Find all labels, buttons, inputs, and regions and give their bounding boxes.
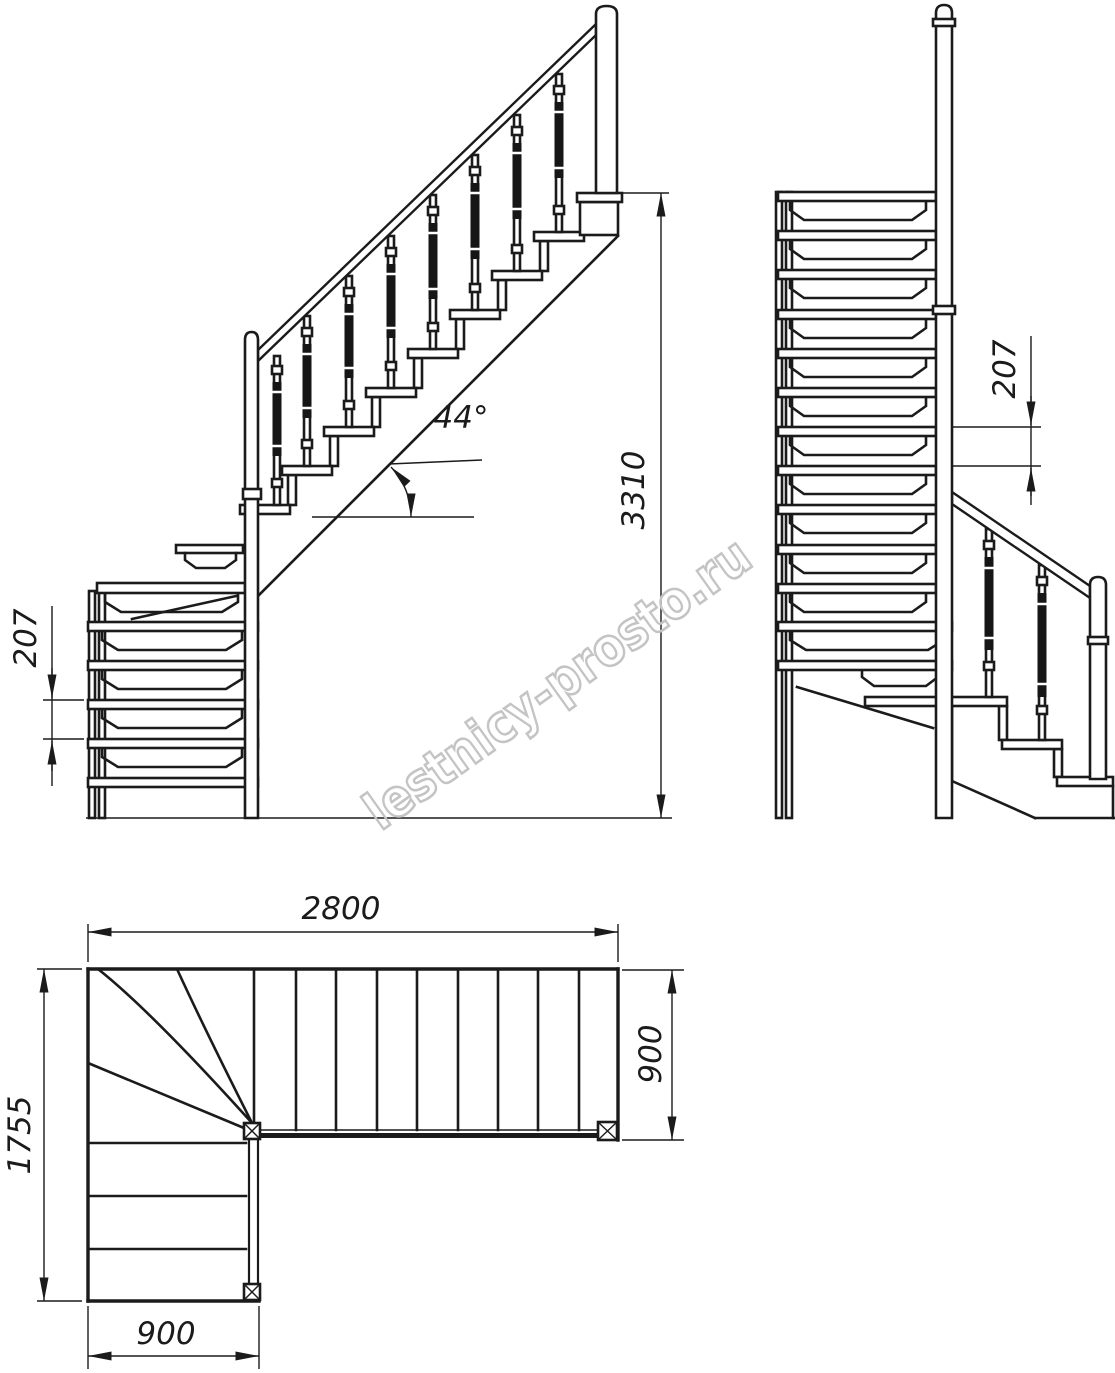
plan-upper-flight bbox=[260, 969, 598, 1136]
dim-riser-side: 207 bbox=[952, 336, 1041, 505]
dim-lower-width: 900 bbox=[88, 1306, 259, 1369]
watermark-text: lestnicy-prosto.ru bbox=[353, 526, 762, 842]
newel-collar bbox=[243, 489, 261, 499]
newel-collar bbox=[933, 306, 955, 314]
plan-winder-fan bbox=[88, 969, 254, 1128]
dim-label-riser-side: 207 bbox=[987, 339, 1023, 398]
tread bbox=[492, 271, 542, 280]
side-newel-top bbox=[936, 5, 952, 818]
dim-flight-width: 900 bbox=[622, 970, 684, 1140]
dim-total-height: 3310 bbox=[616, 193, 669, 818]
side-stringer bbox=[952, 781, 1035, 818]
tread bbox=[366, 388, 416, 397]
dim-label-angle: 44° bbox=[434, 400, 489, 436]
front-newel-mid bbox=[245, 332, 258, 818]
drawing-sheet: 3310 207 44° 207 bbox=[0, 0, 1115, 1373]
tread bbox=[324, 427, 374, 436]
drawer-front bbox=[102, 670, 242, 689]
dim-label-total-height: 3310 bbox=[616, 451, 652, 530]
dim-label-plan-depth: 1755 bbox=[2, 1096, 38, 1175]
side-tread bbox=[1002, 740, 1062, 749]
drawer-front bbox=[102, 748, 242, 767]
newel-collar bbox=[1088, 637, 1108, 644]
winder-cap bbox=[97, 583, 245, 593]
side-lower-flight bbox=[797, 687, 1114, 818]
winder-tread bbox=[88, 700, 258, 709]
front-balusters bbox=[272, 74, 564, 505]
tread bbox=[408, 349, 458, 358]
winder-tread bbox=[88, 661, 258, 670]
side-elevation bbox=[776, 5, 1114, 818]
front-straight-flight bbox=[240, 232, 584, 544]
dim-plan-depth: 1755 bbox=[2, 969, 82, 1301]
dim-riser-front: 207 bbox=[8, 606, 84, 786]
side-handrail bbox=[952, 492, 1090, 598]
winder-tread bbox=[88, 778, 258, 787]
tread bbox=[282, 466, 332, 475]
side-newel-bottom bbox=[1090, 577, 1106, 779]
plan-newel-right bbox=[598, 1122, 617, 1140]
front-landing-block bbox=[580, 202, 618, 235]
drawer-front bbox=[102, 709, 242, 728]
side-tread-stack bbox=[778, 192, 952, 686]
tread bbox=[450, 310, 500, 319]
plan-view bbox=[88, 969, 618, 1301]
front-newel-top bbox=[596, 6, 617, 193]
drawer-front bbox=[185, 553, 236, 568]
winder-tread bbox=[88, 739, 258, 748]
plan-lower-flight bbox=[88, 1139, 258, 1284]
dim-label-flight-width: 900 bbox=[633, 1024, 669, 1083]
winder-tread bbox=[88, 622, 258, 631]
side-stringer bbox=[797, 687, 933, 728]
plan-newel-corner bbox=[244, 1123, 260, 1139]
dim-label-riser-front: 207 bbox=[8, 608, 44, 667]
staircase-drawing: 3310 207 44° 207 bbox=[0, 0, 1115, 1373]
dim-plan-length: 2800 bbox=[88, 891, 618, 962]
winder-tread-edge bbox=[132, 596, 236, 619]
plan-newel-posts bbox=[244, 1122, 617, 1300]
front-winder-stack bbox=[88, 545, 258, 818]
plan-newel-bottom bbox=[244, 1284, 260, 1300]
dim-label-plan-length: 2800 bbox=[302, 891, 381, 927]
dim-label-lower-width: 900 bbox=[136, 1316, 195, 1352]
tread bbox=[534, 232, 584, 241]
front-landing-cap bbox=[577, 193, 622, 202]
newel-collar bbox=[933, 19, 955, 26]
drawer-front bbox=[102, 631, 242, 650]
